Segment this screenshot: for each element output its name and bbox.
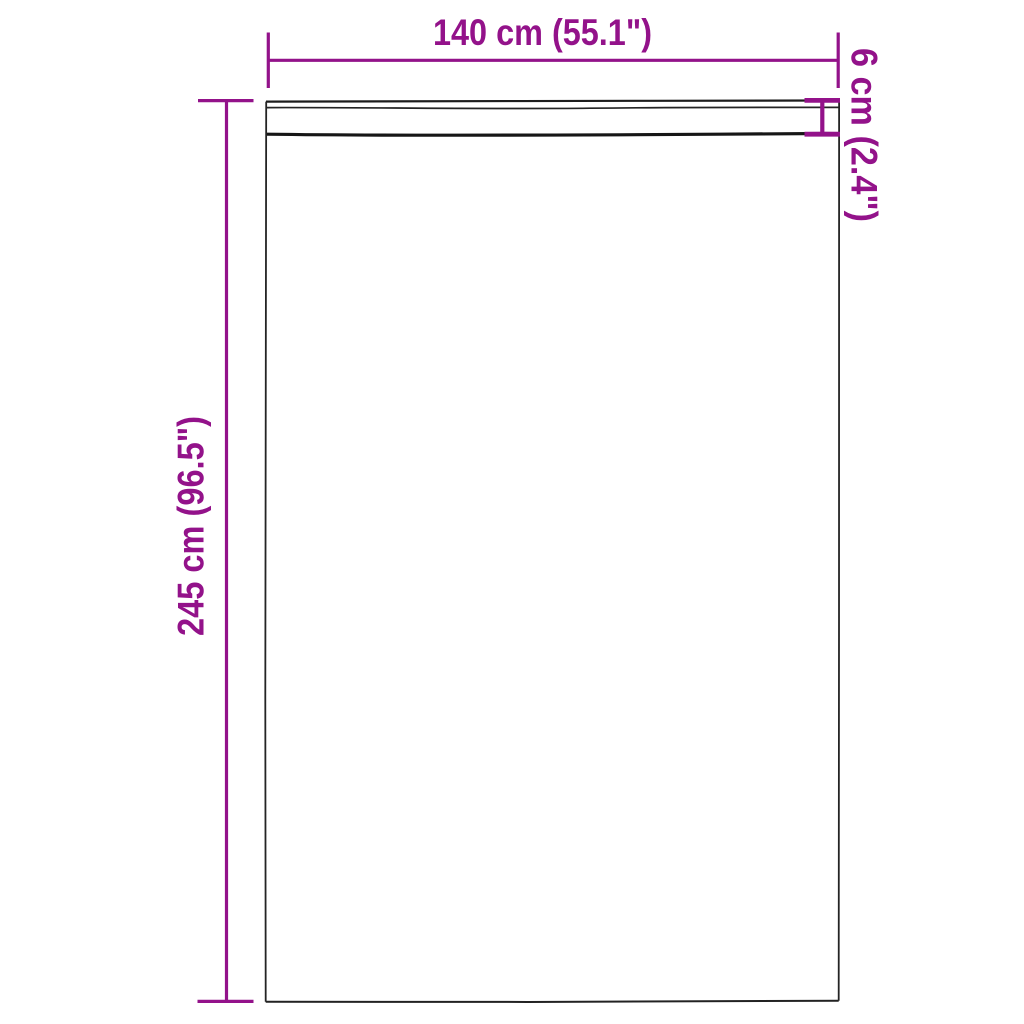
svg-text:6 cm (2.4"): 6 cm (2.4")	[844, 48, 886, 222]
svg-text:245 cm (96.5"): 245 cm (96.5")	[170, 416, 212, 636]
svg-text:140 cm (55.1"): 140 cm (55.1")	[433, 11, 652, 53]
